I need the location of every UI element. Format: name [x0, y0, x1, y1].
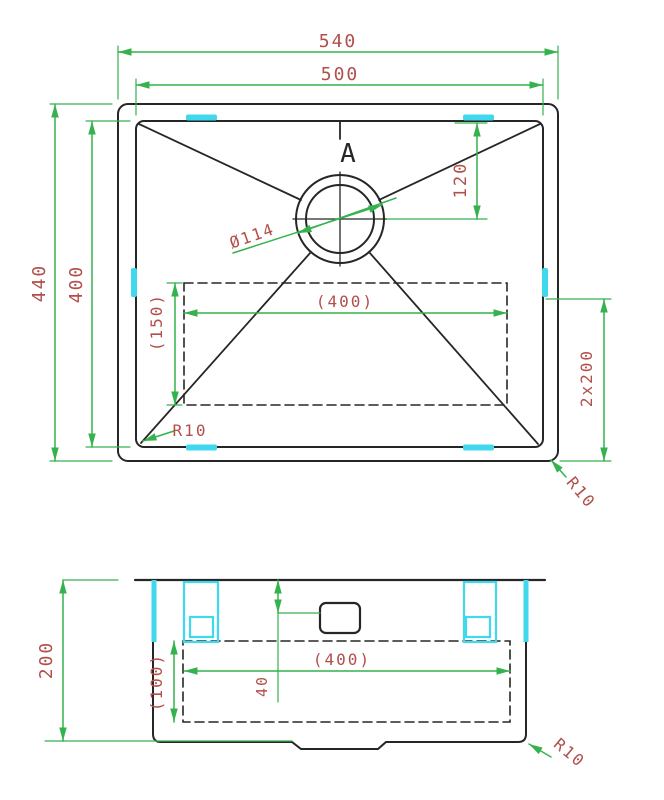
clip-line-right — [524, 580, 529, 642]
dim-text-400: 400 — [66, 265, 87, 304]
cad-drawing-page: A — [0, 0, 664, 800]
clip-line-left — [152, 580, 157, 642]
dim-text-400-base: (400) — [316, 292, 374, 311]
section-label: A — [340, 139, 356, 169]
dim-text-540: 540 — [319, 31, 358, 52]
dimension-lines-section-view — [63, 580, 551, 757]
leader-r10-bottom-right — [551, 460, 566, 477]
bracket-right — [464, 582, 496, 642]
inner-rim-rect — [136, 121, 543, 447]
dim-text-120: 120 — [451, 162, 471, 199]
bracket-left-square — [190, 617, 213, 637]
clip-top-right — [463, 115, 494, 121]
dim-line-diameter-b — [298, 198, 396, 233]
dim-text-400-section: (400) — [313, 650, 371, 669]
dim-text-100: (100) — [147, 653, 166, 711]
slope-line-bottom-left — [141, 252, 311, 443]
clip-top-left — [186, 115, 217, 121]
sink-technical-drawing: A — [0, 0, 664, 800]
section-view: 200 (100) (400) 40 R10 — [36, 580, 589, 771]
dim-text-40: 40 — [253, 675, 271, 697]
dimension-lines-top-view — [55, 52, 604, 477]
clip-left — [131, 268, 137, 297]
dim-text-440: 440 — [29, 264, 50, 303]
clip-bottom-left — [186, 445, 217, 451]
slope-line-bottom-right — [369, 252, 538, 444]
dim-text-r10-bottom-left: R10 — [173, 421, 208, 440]
dim-text-500: 500 — [321, 64, 360, 85]
bracket-right-square — [466, 617, 490, 637]
slope-line-top-left — [139, 124, 301, 200]
clip-bottom-right — [463, 445, 494, 451]
dim-text-150: (150) — [147, 293, 166, 351]
dim-text-2x200: 2x200 — [577, 349, 596, 407]
dim-text-r10-bottom-right: R10 — [563, 473, 600, 512]
dim-text-200: 200 — [36, 641, 57, 680]
clip-right — [542, 268, 548, 297]
dim-text-r10-section: R10 — [550, 734, 589, 771]
top-view: A — [29, 31, 611, 512]
drain-fitting — [320, 603, 360, 633]
extension-lines-top-view — [50, 46, 611, 461]
leader-r10-section — [529, 744, 551, 757]
